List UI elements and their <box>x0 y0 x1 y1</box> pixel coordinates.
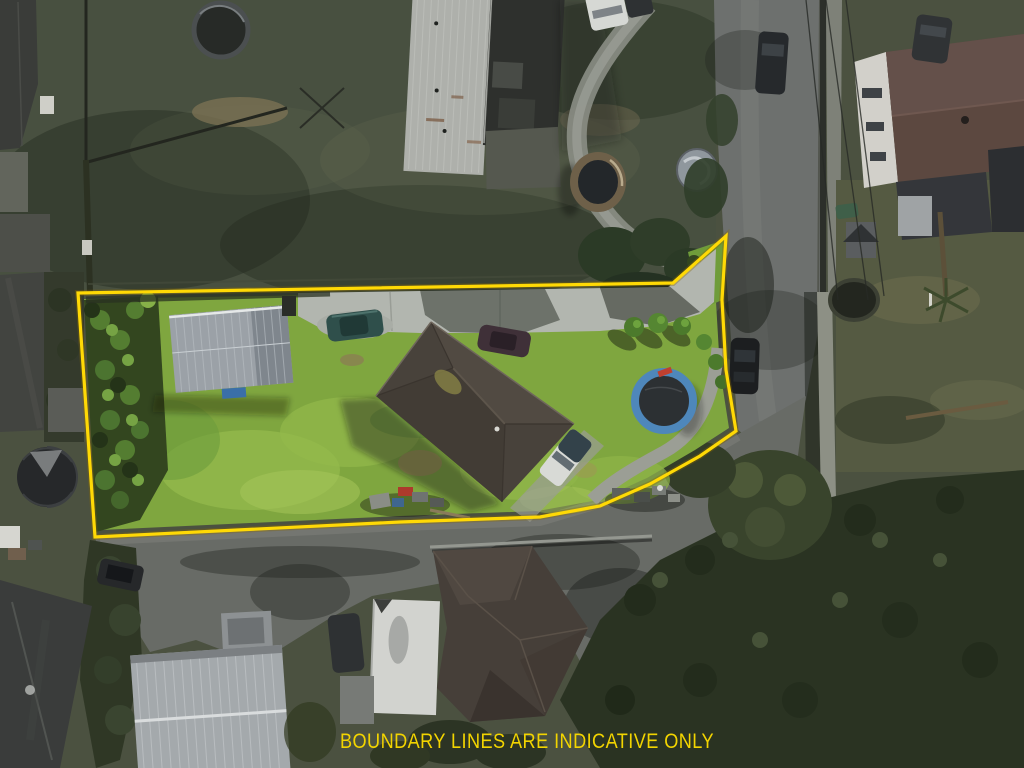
large-outbuilding <box>403 0 571 193</box>
bin <box>82 240 92 255</box>
gray-annex <box>340 676 374 724</box>
white-sign <box>0 526 20 548</box>
small-shed <box>40 96 54 114</box>
black-car-roadside <box>729 338 760 395</box>
dome-tent <box>17 447 77 507</box>
clutter-by-shed <box>282 296 296 316</box>
topright-house <box>835 34 1024 258</box>
hedge-line <box>86 160 90 292</box>
metal-roof-house <box>130 645 291 768</box>
small-outbuilding <box>48 388 85 432</box>
topleft-trampoline <box>194 3 248 57</box>
blue-tarp <box>222 387 247 399</box>
aerial-photo-canvas: BOUNDARY LINES ARE INDICATIVE ONLY <box>0 0 1024 768</box>
garage-shed <box>169 305 293 393</box>
garden-shed <box>898 196 932 236</box>
suv-right-road <box>755 31 789 95</box>
dark-trampoline-right <box>830 280 878 320</box>
dark-van <box>327 612 365 673</box>
white-roof-building <box>370 599 440 715</box>
car-topright <box>911 14 953 65</box>
roadside-fence <box>820 0 826 300</box>
disclaimer-text: BOUNDARY LINES ARE INDICATIVE ONLY <box>340 730 714 753</box>
satellite-dish <box>495 427 500 432</box>
aerial-property-photo: BOUNDARY LINES ARE INDICATIVE ONLY <box>0 0 1024 768</box>
